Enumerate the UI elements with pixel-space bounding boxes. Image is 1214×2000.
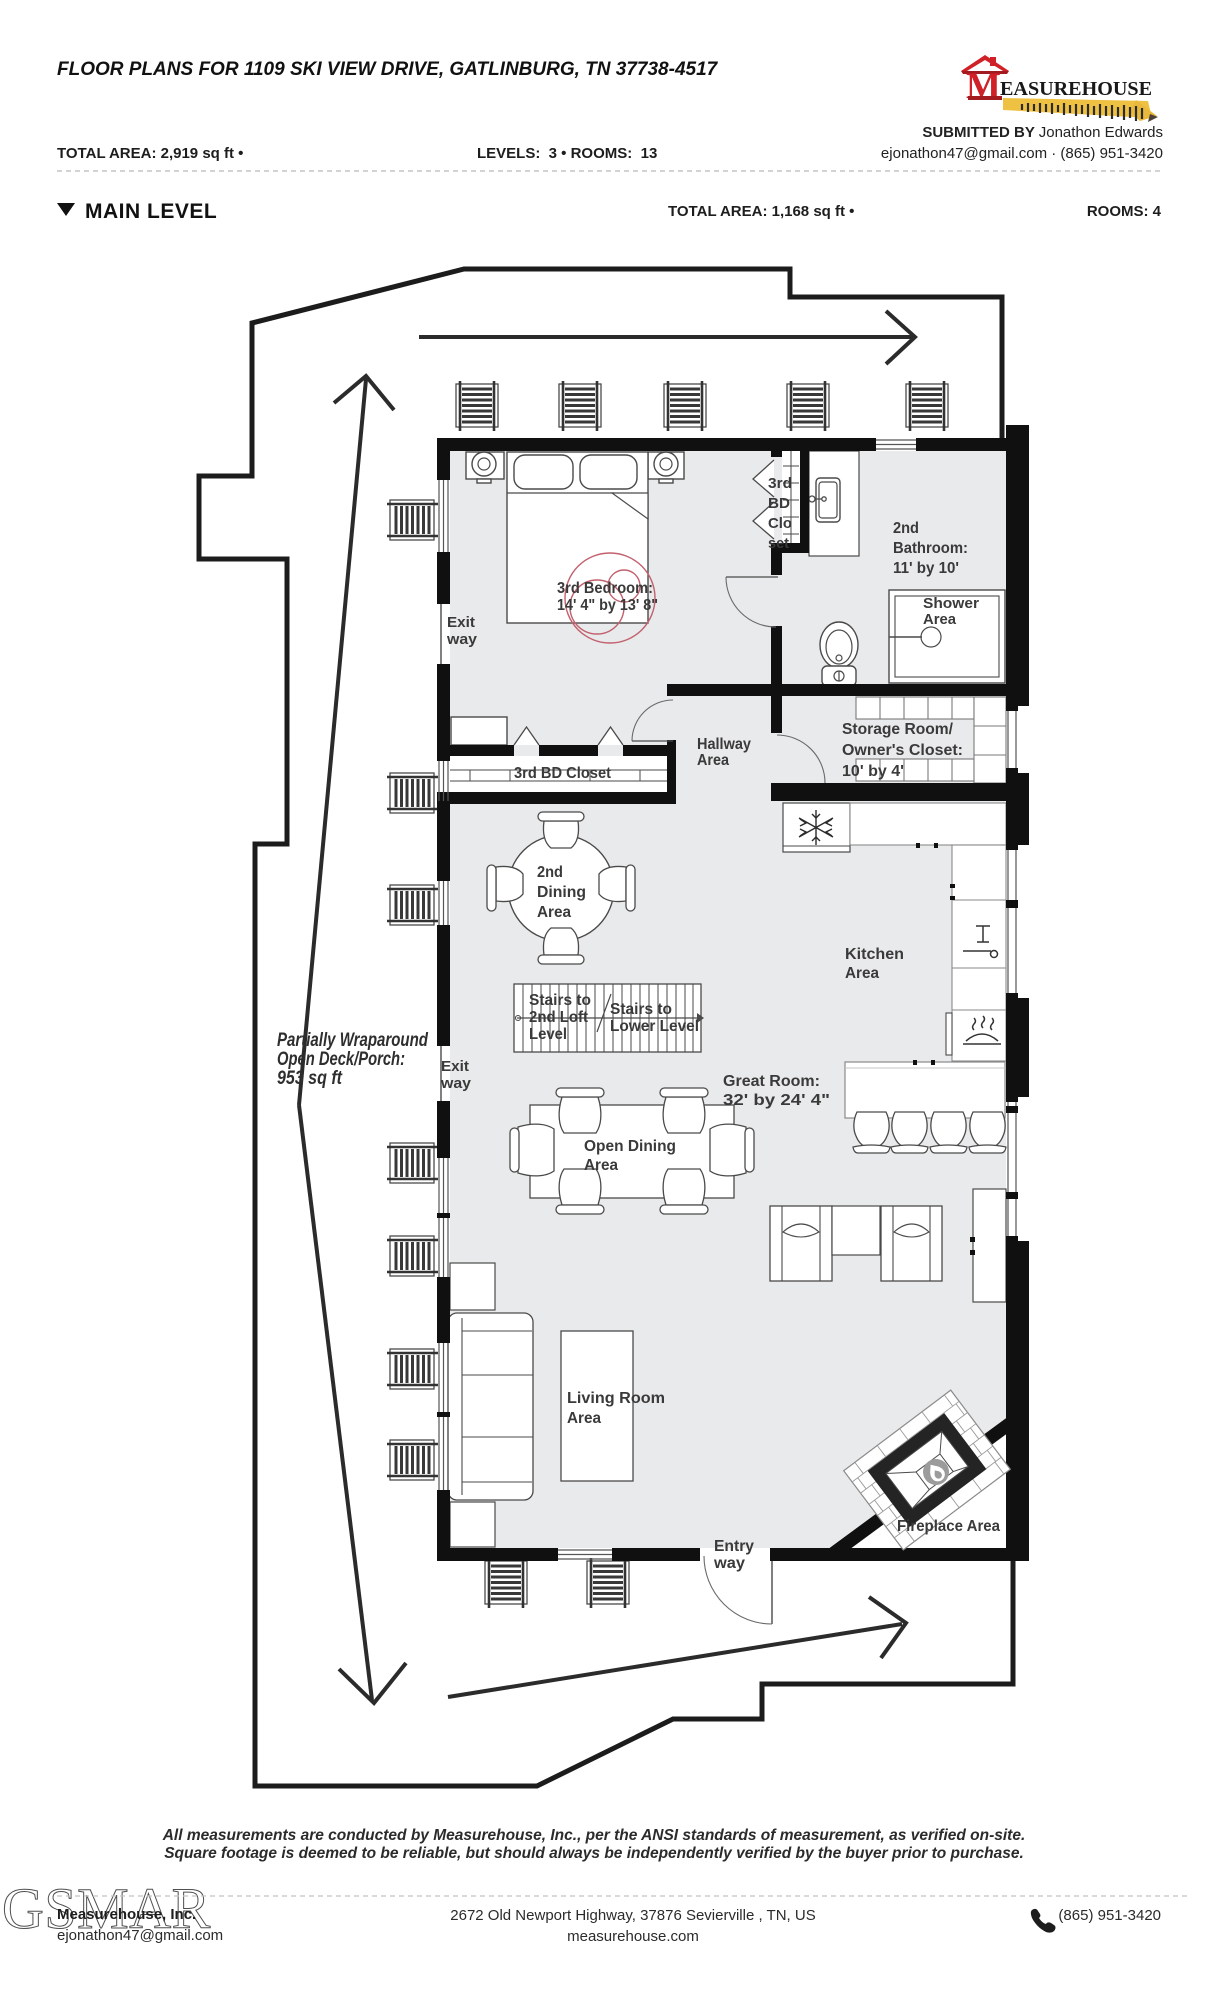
svg-text:Hallway: Hallway <box>697 736 751 753</box>
svg-text:Area: Area <box>923 611 957 628</box>
svg-text:2nd Loft: 2nd Loft <box>529 1009 589 1026</box>
svg-text:3rd BD Closet: 3rd BD Closet <box>514 765 612 782</box>
svg-text:set: set <box>768 535 789 552</box>
svg-text:Area: Area <box>567 1410 601 1427</box>
svg-text:ejonathon47@gmail.com · (865): ejonathon47@gmail.com · (865) 951-3420 <box>881 145 1163 162</box>
svg-text:Kitchen: Kitchen <box>845 946 904 963</box>
svg-text:11' by 10': 11' by 10' <box>893 560 959 577</box>
svg-text:Dining: Dining <box>537 884 586 901</box>
svg-text:Shower: Shower <box>923 595 979 612</box>
svg-text:LEVELS: 3 • ROOMS: 13: LEVELS: 3 • ROOMS: 13 <box>477 145 657 162</box>
svg-text:Stairs to: Stairs to <box>610 1001 672 1018</box>
svg-text:Area: Area <box>537 904 571 921</box>
svg-text:Area: Area <box>845 965 879 982</box>
svg-text:Exit: Exit <box>447 614 475 631</box>
svg-text:Area: Area <box>697 752 729 769</box>
svg-text:M: M <box>966 66 1001 107</box>
svg-text:Open Deck/Porch:: Open Deck/Porch: <box>277 1049 405 1070</box>
svg-text:measurehouse.com: measurehouse.com <box>567 1928 699 1945</box>
svg-text:953 sq ft: 953 sq ft <box>277 1068 343 1089</box>
svg-text:Lower Level: Lower Level <box>610 1018 699 1035</box>
svg-text:(865) 951-3420: (865) 951-3420 <box>1058 1907 1161 1924</box>
svg-text:Entry: Entry <box>714 1538 754 1555</box>
svg-text:14' 4" by 13' 8": 14' 4" by 13' 8" <box>557 597 658 614</box>
svg-text:Bathroom:: Bathroom: <box>893 540 968 557</box>
svg-text:3rd: 3rd <box>768 475 792 492</box>
svg-text:ejonathon47@gmail.com: ejonathon47@gmail.com <box>57 1927 223 1944</box>
svg-text:Storage Room/: Storage Room/ <box>842 721 954 738</box>
svg-text:Stairs to: Stairs to <box>529 992 591 1009</box>
svg-text:Exit: Exit <box>441 1058 469 1075</box>
svg-text:Owner's Closet:: Owner's Closet: <box>842 742 963 759</box>
svg-text:MAIN LEVEL: MAIN LEVEL <box>85 200 217 223</box>
svg-text:2nd: 2nd <box>893 520 919 537</box>
svg-text:Level: Level <box>529 1026 567 1043</box>
svg-text:SUBMITTED BY Jonathon Edwards: SUBMITTED BY Jonathon Edwards <box>922 124 1163 141</box>
svg-text:FLOOR PLANS FOR 1109 SKI VIEW: FLOOR PLANS FOR 1109 SKI VIEW DRIVE, GAT… <box>57 59 719 80</box>
svg-text:2672 Old Newport Highway, 3787: 2672 Old Newport Highway, 37876 Seviervi… <box>450 1907 815 1924</box>
svg-text:Fireplace Area: Fireplace Area <box>897 1518 1000 1535</box>
svg-text:Square footage is deemed to be: Square footage is deemed to be reliable,… <box>164 1845 1024 1862</box>
svg-text:way: way <box>446 631 478 648</box>
svg-text:Partially Wraparound: Partially Wraparound <box>277 1030 428 1051</box>
svg-text:32' by 24' 4": 32' by 24' 4" <box>723 1092 830 1109</box>
svg-text:ROOMS: 4: ROOMS: 4 <box>1087 203 1162 220</box>
svg-text:Living Room: Living Room <box>567 1390 665 1407</box>
svg-text:TOTAL AREA: 2,919 sq ft •: TOTAL AREA: 2,919 sq ft • <box>57 145 243 162</box>
svg-text:Clo: Clo <box>768 515 792 532</box>
svg-text:Area: Area <box>584 1157 618 1174</box>
svg-text:10' by 4': 10' by 4' <box>842 763 904 780</box>
svg-text:2nd: 2nd <box>537 864 563 881</box>
svg-text:way: way <box>440 1075 472 1092</box>
svg-text:3rd Bedroom:: 3rd Bedroom: <box>557 580 653 597</box>
svg-text:Measurehouse, Inc.: Measurehouse, Inc. <box>57 1906 196 1923</box>
svg-text:way: way <box>713 1555 745 1572</box>
svg-text:All measurements are conducted: All measurements are conducted by Measur… <box>162 1827 1026 1844</box>
svg-text:Open Dining: Open Dining <box>584 1138 676 1155</box>
svg-text:EASUREHOUSE: EASUREHOUSE <box>1000 78 1152 100</box>
svg-text:TOTAL AREA: 1,168 sq ft •: TOTAL AREA: 1,168 sq ft • <box>668 203 854 220</box>
svg-text:BD: BD <box>768 495 790 512</box>
svg-text:Great Room:: Great Room: <box>723 1073 820 1090</box>
